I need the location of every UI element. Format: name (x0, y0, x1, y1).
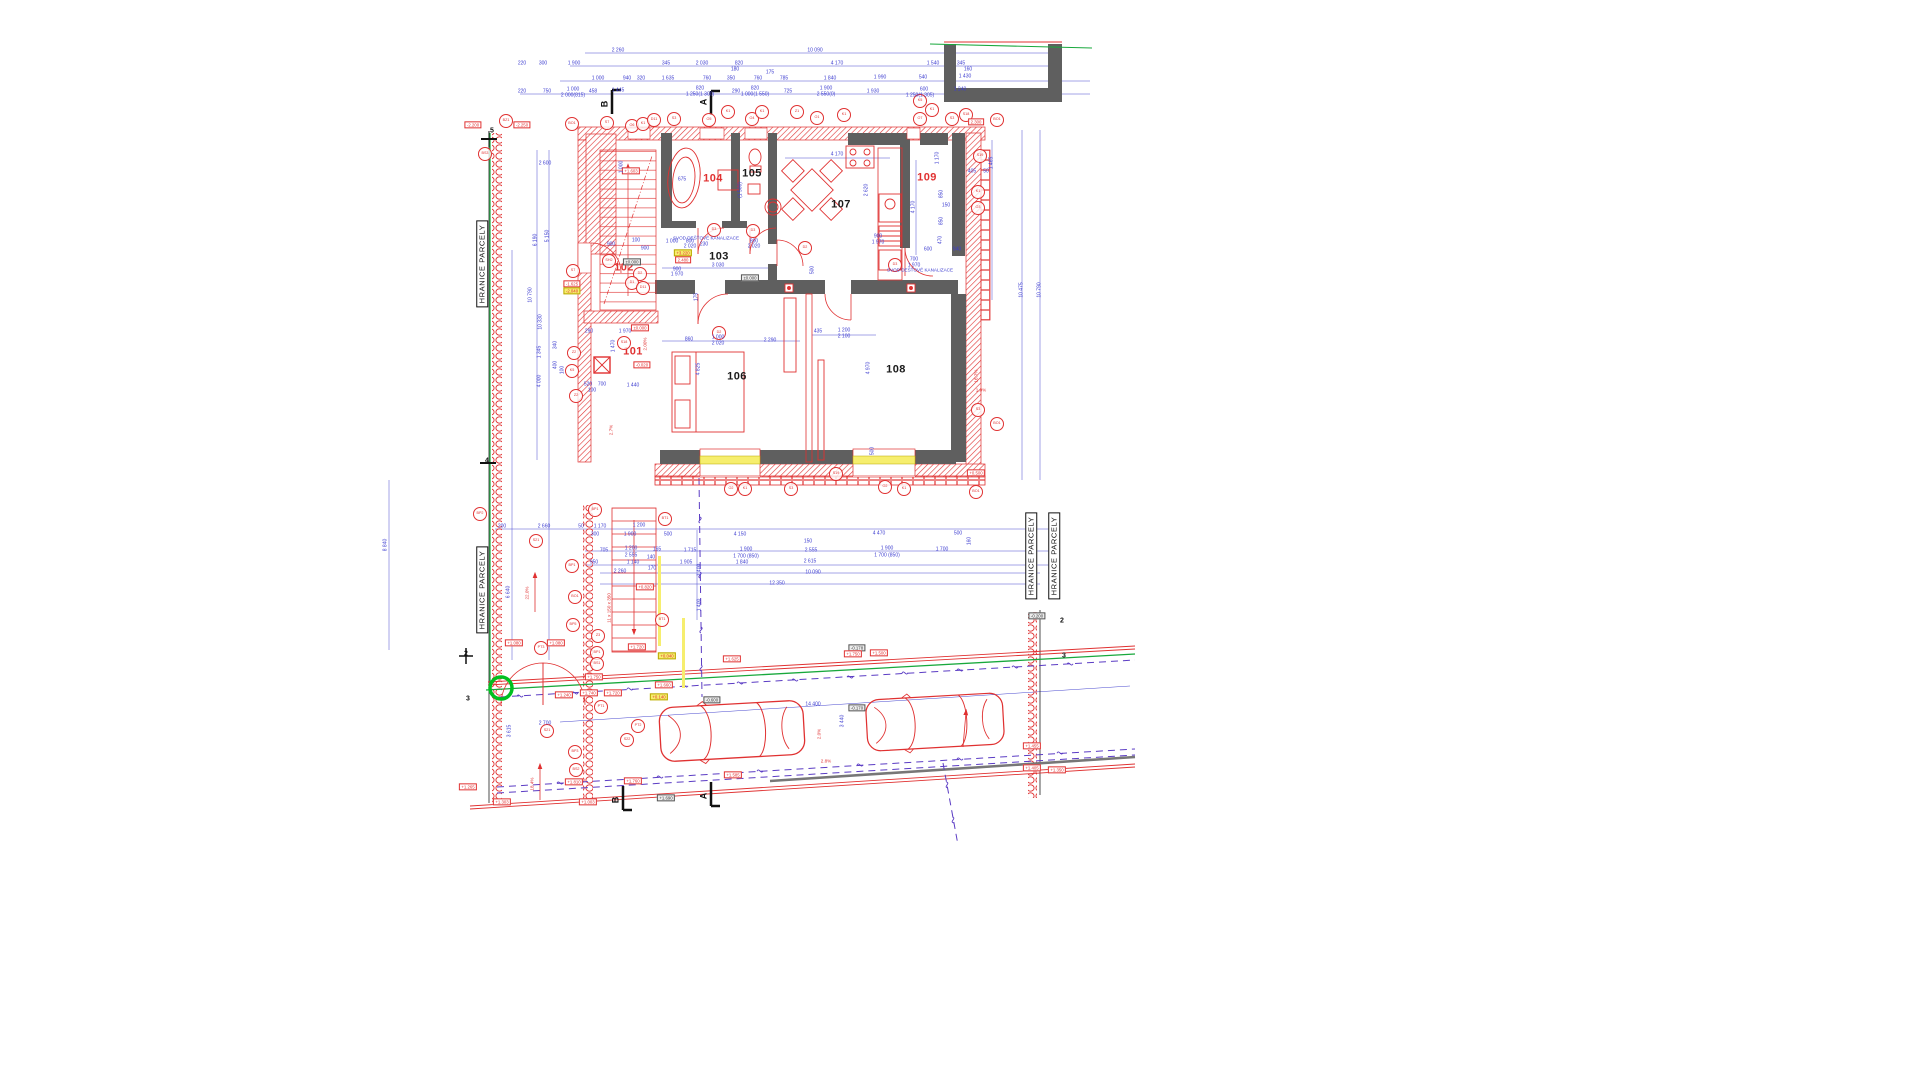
component-tag: S7 (600, 116, 614, 130)
component-tag: O3 (971, 201, 985, 215)
dimension-text: 750 (543, 90, 551, 95)
grid-mark: 5 (490, 128, 494, 135)
section-letter: B (612, 797, 621, 804)
room-number: 108 (886, 365, 906, 376)
dimension-text: 1 700 (936, 548, 949, 553)
dimension-text: 2 700 (539, 722, 552, 727)
note-text: 2.0% (818, 729, 823, 739)
component-tag: Z2 (569, 389, 583, 403)
boundary-label: HRANICE PARCELY (476, 547, 488, 634)
level-marker: -0.600 (703, 696, 720, 703)
grid-mark: 3 (466, 696, 470, 703)
component-tag: PT2 (631, 719, 645, 733)
dimension-text: 2 555 (805, 549, 818, 554)
dimension-text: 100 (561, 366, 566, 374)
component-tag: BZ1 (499, 114, 513, 128)
dimension-text: 340 (554, 341, 559, 349)
component-tag: BP1 (565, 559, 579, 573)
component-tag: BO1 (568, 590, 582, 604)
component-tag: D11 (636, 281, 650, 295)
dimension-text: 705 (600, 549, 608, 554)
dimension-text: 675 (678, 178, 686, 183)
dimension-text: 10 090 (805, 571, 820, 576)
dimension-text: 140 (647, 556, 655, 561)
component-tag: K5 (565, 364, 579, 378)
dimension-text: (1 500) (739, 182, 744, 198)
dimension-text: 2 030 (696, 62, 709, 67)
component-tag: SH2 (602, 254, 616, 268)
level-marker: +0.140 (650, 693, 668, 700)
component-tag: S3 (971, 403, 985, 417)
dimension-text: 300 (539, 62, 547, 67)
dimension-text: 1 170 (594, 525, 607, 530)
dimension-text: 200 (498, 525, 506, 530)
component-tag: S3 (667, 112, 681, 126)
dimension-text: 8 840 (384, 539, 389, 552)
dimension-text: 2 020 (748, 245, 761, 250)
dimension-text: 2 260 (614, 570, 627, 575)
dimension-text: 4 970 (867, 362, 872, 375)
component-tag: BS1 (590, 657, 604, 671)
dimension-text: 4 470 (873, 532, 886, 537)
dimension-text: 2 100 (838, 335, 851, 340)
level-marker: +1.750 (844, 650, 862, 657)
dimension-text: 5 150 (546, 230, 551, 243)
dimension-text: 1 465 (990, 157, 995, 170)
component-tag: S19 (829, 467, 843, 481)
component-tag: BT1 (655, 613, 669, 627)
component-tag: O2 (724, 482, 738, 496)
dimension-text: 165 (653, 548, 661, 553)
component-tag: Z1 (790, 105, 804, 119)
dimension-text: 1 840 (824, 77, 837, 82)
level-marker: +1.080 (505, 639, 523, 646)
dimension-text: 4 000 (538, 375, 543, 388)
dimension-text: 1 345 (538, 346, 543, 359)
dimension-text: 1 840 (736, 561, 749, 566)
note-text: SVOD DEŠŤOVÉ KANALIZACE (887, 269, 953, 274)
level-marker: +1.240 (555, 691, 573, 698)
component-tag: BS2 (569, 763, 583, 777)
dimension-text: 500 (811, 266, 816, 274)
dimension-text: 700 (598, 383, 606, 388)
dimension-text: 1 715 (684, 549, 697, 554)
dimension-text: 1 240 (954, 88, 967, 93)
component-tag: BO1 (990, 113, 1004, 127)
level-marker: +1.455 (1023, 742, 1041, 749)
boundary-label: HRANICE PARCELY (1025, 513, 1037, 600)
level-marker: +1.740 (580, 689, 598, 696)
dimension-text: 10 790 (1038, 282, 1043, 297)
dimension-text: 785 (780, 77, 788, 82)
component-tag: K1 (755, 105, 769, 119)
dimension-text: 10 790 (529, 287, 534, 302)
component-tag: S18 (617, 336, 631, 350)
level-marker: ±0.000 (741, 274, 759, 281)
dimension-text: 1 635 (662, 77, 675, 82)
level-marker: +1.303 (493, 798, 511, 805)
dimension-text: 2 020 (712, 342, 725, 347)
dimension-text: 540 (919, 76, 927, 81)
dimension-text: 950 (590, 561, 598, 566)
note-text: 2.7% (610, 425, 615, 435)
dimension-text: 1 170 (936, 152, 941, 165)
note-text: 2.8% (821, 760, 831, 765)
dimension-text: 1 970 (872, 241, 885, 246)
component-tag: K1 (925, 103, 939, 117)
dimension-text: 2 260 (612, 49, 625, 54)
dimension-text: 1 250(1 305) (906, 94, 934, 99)
dimension-text: 50 (578, 525, 584, 530)
dimension-text: 4 170 (831, 153, 844, 158)
dimension-text: 850 (940, 217, 945, 225)
dimension-text: 290 (732, 90, 740, 95)
dimension-text: 14 400 (805, 703, 820, 708)
boundary-label: HRANICE PARCELY (1048, 513, 1060, 600)
dimension-text: 1 970 (671, 273, 684, 278)
dimension-text: 220 (518, 62, 526, 67)
dimension-text: 290 (585, 330, 593, 335)
dimension-text: 500 (871, 447, 876, 455)
dimension-text: 1 930 (867, 90, 880, 95)
dimension-text: 3 030 (712, 264, 725, 269)
dimension-text: 160 (968, 537, 973, 545)
level-marker: ±0.000 (631, 324, 649, 331)
dimension-text: 4 170 (912, 201, 917, 214)
dimension-text: 500 (664, 533, 672, 538)
component-tag: S7 (566, 264, 580, 278)
label-layer: HRANICE PARCELYHRANICE PARCELYHRANICE PA… (0, 0, 1920, 1080)
component-tag: PT1 (594, 700, 608, 714)
dimension-text: 600 (924, 248, 932, 253)
component-tag: BP3 (568, 745, 582, 759)
component-tag: K1 (738, 482, 752, 496)
room-number: 109 (917, 173, 937, 184)
component-tag: BO1 (969, 485, 983, 499)
dimension-text: 1 900 (568, 62, 581, 67)
dimension-text: 160 (964, 68, 972, 73)
dimension-text: 760 (703, 77, 711, 82)
component-tag: Z2 (567, 346, 581, 360)
level-marker: +1.625 (723, 655, 741, 662)
level-marker: +1.500 (870, 649, 888, 656)
dimension-text: 100 (632, 239, 640, 244)
boundary-label: HRANICE PARCELY (476, 221, 488, 308)
note-text: 16.7% (975, 369, 980, 382)
dimension-text: 2 550(0) (817, 93, 836, 98)
component-tag: D2 (798, 241, 812, 255)
dimension-text: 1 970 (619, 330, 632, 335)
room-number: 106 (727, 372, 747, 383)
dimension-text: 175 (766, 71, 774, 76)
component-tag: S22 (620, 733, 634, 747)
dimension-text: 1 250(1 300) (686, 93, 714, 98)
dimension-text: 3 615 (508, 725, 513, 738)
component-tag: O2 (878, 480, 892, 494)
dimension-text: 2 600 (539, 162, 552, 167)
section-letter: B (601, 101, 610, 108)
level-marker: +0.040 (658, 652, 676, 659)
level-marker: +1.350 (1048, 766, 1066, 773)
dimension-text: 3 440 (841, 715, 846, 728)
dimension-text: 220 (518, 90, 526, 95)
dimension-text: 760 (754, 77, 762, 82)
level-marker: +1.603 (622, 167, 640, 174)
dimension-text: 900 (607, 243, 615, 248)
dimension-text: 1 000 (592, 77, 605, 82)
level-marker: -0.200 (1028, 612, 1045, 619)
component-tag: O1 (810, 111, 824, 125)
component-tag: D3 (746, 224, 760, 238)
dimension-text: 6 190 (534, 234, 539, 247)
note-text: SVOD DEŠŤOVÉ KANALIZACE (673, 237, 739, 242)
component-tag: K1 (837, 108, 851, 122)
dimension-text: 1 540 (927, 62, 940, 67)
dimension-text: 350 (727, 77, 735, 82)
dimension-text: 2 660 (538, 525, 551, 530)
dimension-text: 1 900 (881, 547, 894, 552)
dimension-text: 1 440 (627, 384, 640, 389)
component-tag: O7 (913, 112, 927, 126)
dimension-text: 300 (591, 533, 599, 538)
component-tag: BP2 (473, 507, 487, 521)
dimension-text: 2 290 (764, 339, 777, 344)
dimension-text: 1 000(1 550) (741, 93, 769, 98)
note-text: 2.00% (644, 337, 649, 350)
dimension-text: 175 (695, 293, 700, 301)
grid-mark: 2 (1060, 618, 1064, 625)
dimension-text: 345 (662, 62, 670, 67)
dimension-text: 320 (637, 77, 645, 82)
level-marker: +1.760 (624, 777, 642, 784)
level-marker: -2.040 (563, 287, 580, 294)
level-marker: +1.720 (604, 689, 622, 696)
level-marker: +1.585 (724, 771, 742, 778)
dimension-text: 1 400 (698, 564, 703, 577)
dimension-text: 2 020 (684, 245, 697, 250)
dimension-text: 940 (623, 77, 631, 82)
grid-mark: 2 (464, 651, 468, 658)
dimension-text: 10 475 (1020, 282, 1025, 297)
level-marker: ±0.000 (623, 258, 641, 265)
level-marker: +1.690 (657, 794, 675, 801)
level-marker: -0.170 (848, 704, 865, 711)
dimension-text: 100 (588, 389, 596, 394)
component-tag: K1 (897, 482, 911, 496)
room-number: 104 (703, 174, 723, 185)
component-tag: Z3 (591, 629, 605, 643)
room-number: 105 (742, 169, 762, 180)
dimension-text: 435 (814, 330, 822, 335)
component-tag: S21 (529, 534, 543, 548)
dimension-text: 1 430 (959, 75, 972, 80)
level-marker: +1.660 (655, 681, 673, 688)
component-tag: BP1 (588, 503, 602, 517)
level-marker: +1.750 (585, 673, 603, 680)
level-marker: 2.480 (675, 256, 691, 263)
section-letter: A (700, 793, 709, 800)
dimension-text: 2 555 (625, 554, 638, 559)
level-marker: +1.405 (1023, 764, 1041, 771)
dimension-text: 900 (641, 247, 649, 252)
dimension-text: 1 445 (612, 89, 625, 94)
component-tag: BP5 (566, 618, 580, 632)
note-text: 18.4% (531, 777, 536, 790)
level-marker: +1.003 (579, 798, 597, 805)
dimension-text: 2 620 (865, 184, 870, 197)
dimension-text: 1 905 (680, 561, 693, 566)
section-letter: A (700, 99, 709, 106)
dimension-text: 6 640 (507, 586, 512, 599)
dimension-text: 940 (953, 248, 961, 253)
floor-plan-page: HRANICE PARCELYHRANICE PARCELYHRANICE PA… (0, 0, 1920, 1080)
level-marker: +0.820 (636, 583, 654, 590)
dimension-text: 1 200 (633, 524, 646, 529)
dimension-text: 405 (968, 170, 976, 175)
dimension-text: 10 330 (539, 314, 544, 329)
dimension-text: 1 000 (620, 161, 625, 174)
component-tag: D11 (647, 113, 661, 127)
component-tag: S19 (973, 149, 987, 163)
dimension-text: 230 (700, 243, 708, 248)
level-marker: +0.500 (967, 469, 985, 476)
dimension-text: 4 825 (697, 363, 702, 376)
level-marker: -2.250 (513, 121, 530, 128)
component-tag: BS3 (478, 147, 492, 161)
level-marker: +1.810 (565, 778, 583, 785)
dimension-text: 850 (940, 190, 945, 198)
dimension-text: 500 (954, 532, 962, 537)
dimension-text: 12 350 (769, 582, 784, 587)
dimension-text: 150 (804, 540, 812, 545)
dimension-text: 1 900 (740, 548, 753, 553)
room-number: 107 (831, 200, 851, 211)
component-tag: S3 (784, 482, 798, 496)
level-marker: -0.020 (633, 361, 650, 368)
component-tag: S3 (945, 112, 959, 126)
level-marker: 2.300 (968, 118, 984, 125)
dimension-text: 400 (554, 361, 559, 369)
dimension-text: 1 200 (625, 547, 638, 552)
note-text: 1.0% (976, 389, 986, 394)
dimension-text: 725 (784, 90, 792, 95)
dimension-text: 10 090 (807, 49, 822, 54)
dimension-text: 1 470 (612, 340, 617, 353)
grid-mark: 3 (1062, 653, 1066, 660)
dimension-text: 1 700 (850) (874, 554, 900, 559)
dimension-text: 860 (685, 338, 693, 343)
level-marker: -2.200 (464, 121, 481, 128)
dimension-text: 1 400 (698, 599, 703, 612)
dimension-text: 1 900 (624, 533, 637, 538)
dimension-text: 170 (648, 567, 656, 572)
note-text: 22.0% (526, 586, 531, 599)
component-tag: BT1 (658, 512, 672, 526)
level-marker: +1.720 (628, 643, 646, 650)
dimension-text: 50 (983, 170, 989, 175)
dimension-text: 1 140 (627, 561, 640, 566)
dimension-text: 2 615 (804, 560, 817, 565)
component-tag: BO1 (990, 417, 1004, 431)
component-tag: BO1 (565, 117, 579, 131)
note-text: 11 x 150 x 350 (608, 593, 613, 623)
dimension-text: 4 150 (734, 533, 747, 538)
grid-mark: 4 (485, 458, 489, 465)
dimension-text: 470 (939, 236, 944, 244)
dimension-text: 180 (731, 68, 739, 73)
dimension-text: 150 (942, 204, 950, 209)
level-marker: +1.265 (459, 783, 477, 790)
dimension-text: 458 (589, 90, 597, 95)
level-marker: +1.080 (547, 639, 565, 646)
room-number: 103 (709, 252, 729, 263)
dimension-text: 1 990 (874, 76, 887, 81)
component-tag: K1 (971, 185, 985, 199)
component-tag: O5 (702, 113, 716, 127)
dimension-text: 2 000(815) (561, 94, 585, 99)
component-tag: K1 (721, 105, 735, 119)
dimension-text: 4 170 (831, 62, 844, 67)
